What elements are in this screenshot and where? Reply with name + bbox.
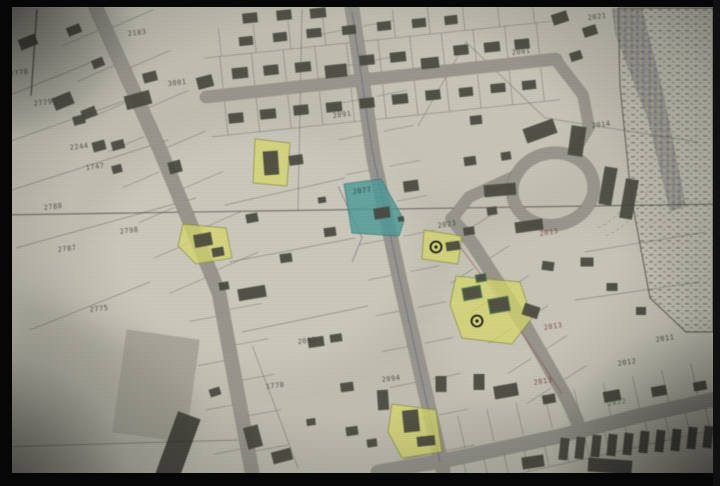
building bbox=[445, 241, 460, 252]
letterbox-top bbox=[0, 0, 720, 7]
building bbox=[228, 112, 244, 124]
building bbox=[541, 261, 554, 272]
building bbox=[581, 258, 594, 267]
building bbox=[340, 382, 354, 393]
building bbox=[367, 438, 378, 447]
building bbox=[232, 67, 249, 80]
building bbox=[487, 206, 498, 215]
building bbox=[263, 64, 279, 76]
video-frame: 2103300122441747277827792788279827872091… bbox=[0, 0, 720, 486]
building bbox=[607, 283, 618, 291]
building bbox=[412, 18, 427, 28]
building bbox=[490, 83, 506, 94]
building bbox=[459, 87, 474, 97]
building bbox=[359, 97, 375, 109]
building bbox=[436, 376, 447, 392]
building bbox=[218, 281, 229, 291]
building bbox=[425, 89, 441, 101]
building bbox=[522, 80, 537, 90]
building bbox=[306, 418, 316, 426]
building bbox=[403, 180, 419, 193]
building bbox=[323, 227, 336, 238]
building-green-outline bbox=[488, 296, 510, 313]
building bbox=[417, 435, 436, 447]
letterbox-left bbox=[0, 0, 12, 486]
building bbox=[377, 390, 389, 411]
parcel-map-drawing: 2103300122441747277827792788279827872091… bbox=[0, 0, 720, 486]
building bbox=[463, 156, 476, 167]
building bbox=[242, 12, 258, 24]
building bbox=[470, 115, 483, 125]
building bbox=[453, 44, 469, 56]
building bbox=[276, 9, 292, 21]
building bbox=[636, 307, 646, 315]
building bbox=[324, 63, 347, 78]
building bbox=[288, 154, 303, 166]
building bbox=[484, 41, 501, 53]
building bbox=[295, 61, 312, 73]
building bbox=[260, 108, 277, 120]
building bbox=[377, 21, 392, 31]
building bbox=[501, 151, 512, 160]
building bbox=[463, 226, 475, 235]
building-green-outline bbox=[462, 286, 482, 301]
building bbox=[273, 32, 288, 42]
building bbox=[421, 57, 440, 70]
building bbox=[318, 197, 327, 204]
building bbox=[474, 374, 485, 390]
building bbox=[359, 54, 375, 66]
building bbox=[293, 104, 309, 116]
circle-marker-dot bbox=[475, 319, 478, 322]
parcel-map: 2103300122441747277827792788279827872091… bbox=[0, 0, 720, 486]
building bbox=[263, 151, 280, 176]
letterbox-bottom bbox=[0, 473, 720, 486]
building bbox=[390, 51, 407, 63]
building bbox=[402, 409, 420, 433]
building-green-outline bbox=[476, 274, 487, 283]
building bbox=[310, 7, 327, 19]
building bbox=[239, 36, 254, 46]
building bbox=[306, 28, 322, 39]
building bbox=[345, 426, 358, 437]
building bbox=[444, 15, 458, 25]
circle-marker-dot bbox=[434, 245, 437, 248]
building bbox=[373, 206, 390, 219]
building bbox=[330, 333, 343, 343]
building bbox=[398, 216, 405, 222]
building bbox=[392, 93, 409, 105]
letterbox-right bbox=[713, 0, 720, 486]
building bbox=[342, 25, 357, 35]
building bbox=[279, 253, 292, 264]
